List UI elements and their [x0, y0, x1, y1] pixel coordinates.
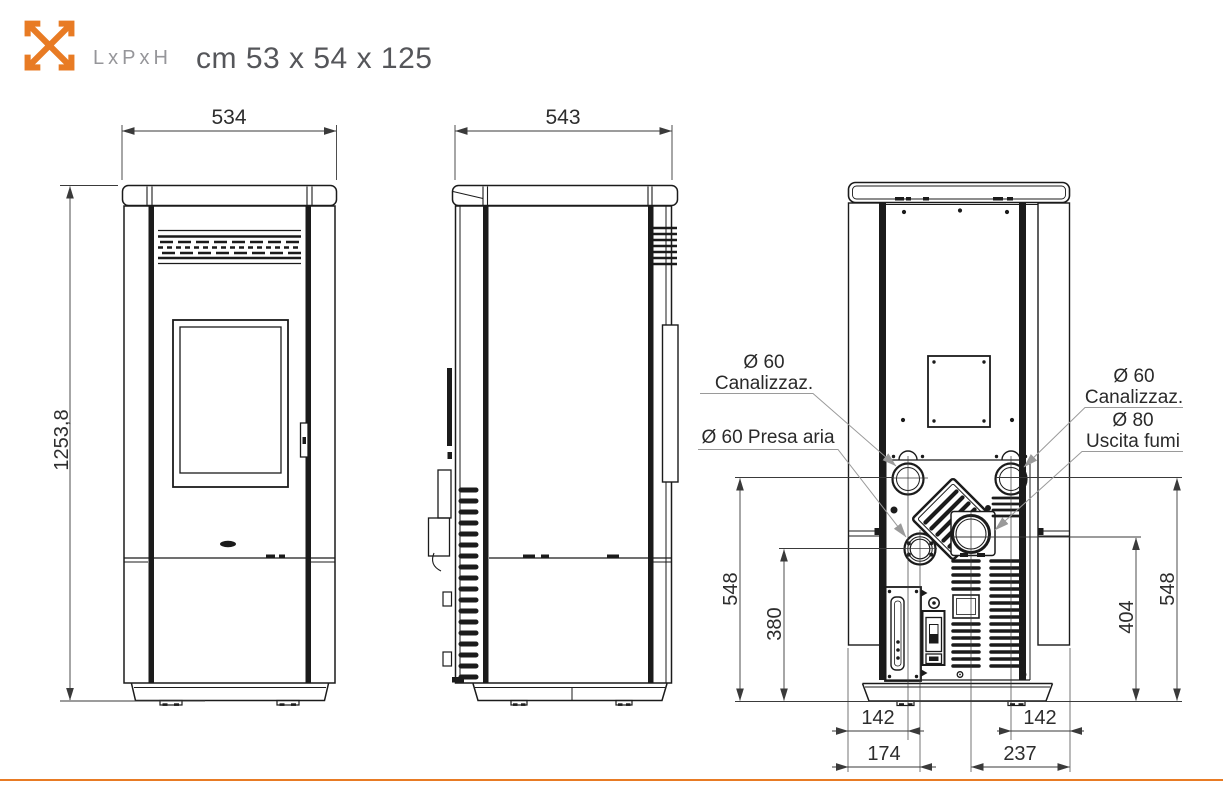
callout-canalizzazione-left-diameter: Ø 60: [743, 352, 784, 373]
dim-left-outer-548: 548: [720, 478, 893, 701]
back-dimensions: 548 380 404 548 142: [720, 456, 1182, 772]
back-inspection-panel: [928, 356, 990, 427]
dim-right-inner-404-text: 404: [1116, 600, 1138, 633]
side-base: [473, 684, 667, 706]
bolt-dot-right: [985, 505, 991, 511]
thermal-reset-button: [929, 598, 939, 608]
side-top-cap: [453, 186, 678, 206]
front-view: [123, 186, 337, 706]
dim-left-inner-380-text: 380: [764, 607, 786, 640]
front-width-dimension: 534: [122, 106, 337, 180]
side-view: [429, 186, 679, 706]
callout-presa-aria-text: Ø 60 Presa aria: [701, 427, 834, 448]
technical-drawing-page: LxPxH cm 53 x 54 x 125: [0, 0, 1223, 797]
dim-bottom-142-left-text: 142: [861, 707, 894, 729]
stove-three-view-drawing: 534 1253,8: [0, 0, 1223, 797]
dim-bottom-237-text: 237: [1003, 743, 1036, 765]
power-switch: [923, 611, 945, 665]
dim-right-outer-548-text: 548: [1157, 572, 1179, 605]
side-vent-slats: [461, 490, 476, 677]
front-door-window: [173, 320, 288, 487]
side-door-hinge: [429, 368, 465, 683]
dim-right-inner-404: 404: [953, 537, 1141, 701]
front-door-handle: [301, 423, 309, 457]
front-top-cap: [123, 186, 337, 206]
dim-left-outer-548-text: 548: [720, 572, 742, 605]
smoke-outlet: [951, 512, 995, 558]
back-upper-panel: [880, 205, 1038, 423]
dim-bottom-174-text: 174: [867, 743, 900, 765]
bolt-dot-left: [891, 507, 898, 514]
back-bottom-screws: [957, 672, 1026, 678]
front-width-text: 534: [211, 106, 246, 129]
front-height-text: 1253,8: [51, 409, 73, 470]
electrical-panel: [885, 587, 928, 681]
callout-canalizzazione-right-name: Canalizzaz.: [1085, 387, 1183, 408]
callout-canalizzazione-left: Ø 60 Canalizzaz.: [700, 352, 896, 466]
callout-canalizzazione-right-diameter: Ø 60: [1113, 366, 1154, 387]
front-air-grille: [158, 231, 301, 264]
back-upper-right-slats: [993, 498, 1021, 516]
callout-uscita-fumi-diameter: Ø 80: [1112, 410, 1153, 431]
callout-canalizzazione-left-name: Canalizzaz.: [715, 373, 813, 394]
brand-logo-mark: [220, 541, 236, 547]
side-depth-text: 543: [545, 106, 580, 129]
side-top-grille: [650, 228, 677, 264]
dim-bottom-174: 174: [832, 743, 936, 767]
back-top-cap: [849, 183, 1070, 203]
side-depth-dimension: 543: [455, 106, 672, 180]
footer-accent-line: [0, 779, 1223, 781]
callout-presa-aria: Ø 60 Presa aria: [698, 427, 906, 537]
dim-bottom-142-right-text: 142: [1023, 707, 1056, 729]
side-panel-split: [489, 555, 672, 563]
callout-uscita-fumi-name: Uscita fumi: [1086, 431, 1180, 452]
side-body: [456, 206, 672, 683]
front-panel-split: [124, 555, 335, 563]
dim-bottom-142-right: 142: [997, 707, 1084, 731]
side-back-duct-cover: [663, 325, 679, 482]
dim-bottom-237: 237: [972, 743, 1070, 767]
back-view: [848, 183, 1070, 706]
front-base: [132, 684, 329, 706]
dim-bottom-142-left: 142: [832, 707, 924, 731]
front-height-dimension: 1253,8: [51, 186, 205, 702]
